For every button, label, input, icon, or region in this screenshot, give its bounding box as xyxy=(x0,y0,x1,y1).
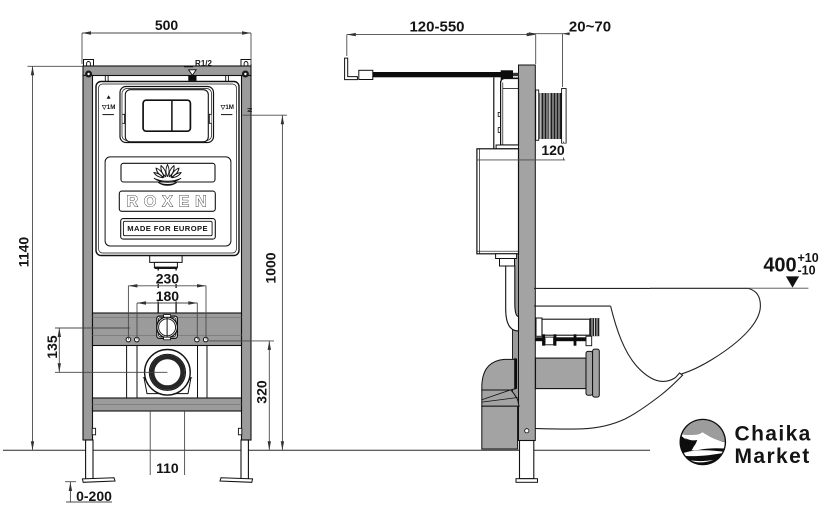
svg-text:▽1M: ▽1M xyxy=(220,104,234,111)
svg-text:▽1M: ▽1M xyxy=(101,104,115,111)
svg-text:Market: Market xyxy=(735,445,811,468)
svg-text:1140: 1140 xyxy=(16,237,32,268)
svg-text:20~70: 20~70 xyxy=(569,19,611,36)
svg-text:1000: 1000 xyxy=(263,252,279,283)
svg-text:ROXEN: ROXEN xyxy=(127,194,213,211)
svg-text:120: 120 xyxy=(541,142,565,158)
svg-text:400: 400 xyxy=(763,255,796,277)
svg-text:-10: -10 xyxy=(798,264,816,278)
svg-text:500: 500 xyxy=(155,17,179,33)
svg-text:320: 320 xyxy=(254,380,270,404)
svg-text:110: 110 xyxy=(156,460,179,476)
svg-text:MADE FOR EUROPE: MADE FOR EUROPE xyxy=(127,224,208,233)
svg-text:120-550: 120-550 xyxy=(409,19,464,36)
svg-text:180: 180 xyxy=(156,288,180,304)
svg-text:N: N xyxy=(246,108,252,112)
svg-text:Chaika: Chaika xyxy=(735,423,812,446)
svg-text:R1/2: R1/2 xyxy=(195,59,212,68)
svg-text:135: 135 xyxy=(44,335,60,359)
svg-text:0-200: 0-200 xyxy=(76,488,112,504)
svg-text:230: 230 xyxy=(156,270,180,286)
